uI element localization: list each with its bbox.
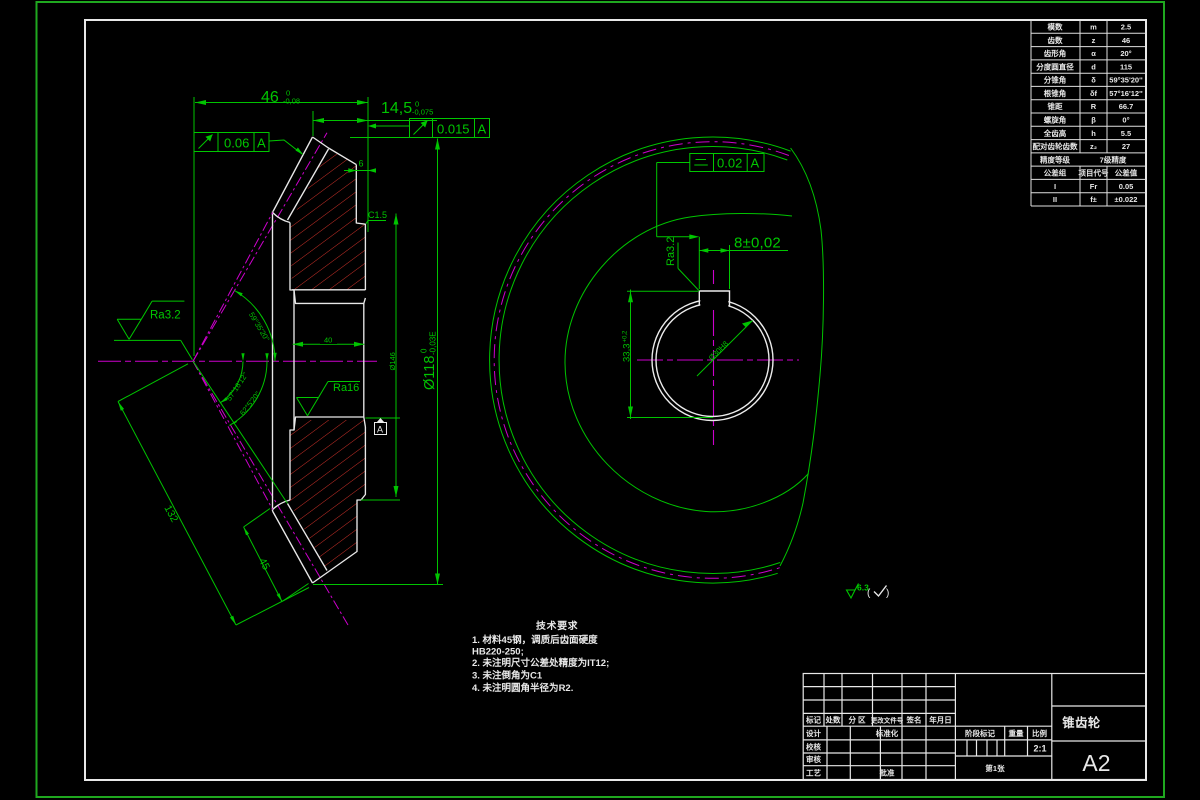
svg-text:±0.022: ±0.022 [1115,195,1138,204]
svg-text:2. 未注明尺寸公差处精度为IT12;: 2. 未注明尺寸公差处精度为IT12; [472,657,609,669]
svg-text:0.02: 0.02 [717,156,742,171]
svg-text:螺旋角: 螺旋角 [1044,115,1067,125]
svg-text:0.015: 0.015 [437,122,470,137]
svg-text:II: II [1053,195,1057,204]
svg-text:项目代号: 项目代号 [1079,168,1109,178]
svg-text:): ) [886,588,889,599]
svg-text:分锥角: 分锥角 [1044,75,1067,85]
svg-text:1. 材料45钢，调质后齿面硬度: 1. 材料45钢，调质后齿面硬度 [472,634,598,646]
svg-text:更改文件号: 更改文件号 [871,716,904,725]
svg-text:批准: 批准 [880,767,895,777]
svg-text:27: 27 [1122,142,1130,151]
svg-text:66.7: 66.7 [1119,102,1134,111]
svg-text:公差组: 公差组 [1044,168,1067,178]
svg-text:比例: 比例 [1032,728,1048,738]
svg-text:f±: f± [1090,195,1097,204]
svg-text:2:1: 2:1 [1033,744,1046,754]
svg-text:d: d [1091,62,1096,71]
svg-text:δ: δ [1091,76,1096,85]
svg-text:齿数: 齿数 [1048,35,1064,45]
svg-text:6: 6 [359,159,364,169]
svg-text:33,3: 33,3 [622,344,633,363]
svg-text:14,5: 14,5 [381,100,412,117]
svg-text:标记: 标记 [805,715,821,725]
svg-text:工艺: 工艺 [806,767,821,777]
svg-text:20°: 20° [1120,49,1131,58]
svg-text:HB220-250;: HB220-250; [472,647,524,658]
svg-text:精度等级: 精度等级 [1040,154,1070,164]
svg-text:A: A [377,425,383,435]
svg-text:59°35'20'': 59°35'20'' [1109,76,1143,85]
svg-text:4. 未注明圆角半径为R2.: 4. 未注明圆角半径为R2. [472,682,573,694]
svg-text:0.05: 0.05 [1119,182,1134,191]
svg-text:A: A [257,136,266,151]
svg-text:A: A [478,122,487,137]
svg-text:重量: 重量 [1009,728,1024,738]
svg-text:Ra3.2: Ra3.2 [665,237,677,266]
svg-text:115: 115 [1120,62,1132,71]
svg-text:R: R [1091,102,1097,111]
svg-text:-0,08: -0,08 [283,97,300,106]
svg-text:Fr: Fr [1090,182,1098,191]
svg-text:+0,2: +0,2 [623,330,629,343]
svg-text:-0,075: -0,075 [412,108,433,117]
svg-text:校核: 校核 [806,741,821,751]
svg-text:2.5: 2.5 [1121,23,1131,32]
svg-text:5.5: 5.5 [1121,129,1131,138]
svg-text:δf: δf [1090,89,1098,98]
svg-text:锥齿轮: 锥齿轮 [1062,715,1101,730]
svg-text:分度圆直径: 分度圆直径 [1036,61,1074,71]
svg-text:Ø146: Ø146 [388,352,397,370]
svg-text:40: 40 [324,336,332,345]
svg-text:Ra16: Ra16 [333,382,359,394]
svg-text:模数: 模数 [1048,22,1064,32]
svg-text:C1.5: C1.5 [368,210,387,220]
svg-text:配对齿轮齿数: 配对齿轮齿数 [1033,141,1078,151]
svg-text:年月日: 年月日 [929,715,952,725]
svg-text:阶段标记: 阶段标记 [965,728,995,738]
svg-text:h: h [1091,129,1096,138]
svg-text:A2: A2 [1082,750,1110,776]
svg-text:根锥角: 根锥角 [1044,88,1067,98]
svg-text:分 区: 分 区 [848,715,866,725]
svg-text:46: 46 [1122,36,1130,45]
svg-text:设计: 设计 [806,728,821,738]
svg-text:审核: 审核 [806,754,821,764]
svg-text:8±0,02: 8±0,02 [734,235,781,252]
svg-text:46: 46 [261,89,279,106]
svg-text:签名: 签名 [906,715,922,725]
svg-text:0.06: 0.06 [224,136,249,151]
svg-text:公差值: 公差值 [1115,168,1138,178]
svg-text:0°: 0° [1122,116,1129,125]
svg-text:齿形角: 齿形角 [1044,48,1067,58]
svg-text:α: α [1091,49,1096,58]
svg-text:z: z [1092,36,1096,45]
svg-text:锥距: 锥距 [1048,101,1064,111]
svg-text:全齿高: 全齿高 [1043,128,1067,138]
svg-text:标准化: 标准化 [875,728,899,738]
svg-text:-0,03E: -0,03E [429,331,438,355]
svg-text:Ø118: Ø118 [422,356,438,390]
svg-text:Ra3.2: Ra3.2 [150,310,181,322]
svg-text:0: 0 [420,348,429,353]
svg-text:第1张: 第1张 [985,763,1005,773]
svg-text:β: β [1091,116,1096,125]
svg-text:57°16'12'': 57°16'12'' [1109,89,1143,98]
svg-text:m: m [1090,23,1097,32]
svg-text:7级精度: 7级精度 [1100,154,1127,164]
svg-text:A: A [751,156,760,171]
svg-text:3. 未注倒角为C1: 3. 未注倒角为C1 [472,670,543,682]
svg-text:I: I [1054,182,1056,191]
svg-text:处数: 处数 [825,715,841,725]
svg-text:z₂: z₂ [1090,142,1097,151]
svg-text:技术要求: 技术要求 [536,619,578,632]
